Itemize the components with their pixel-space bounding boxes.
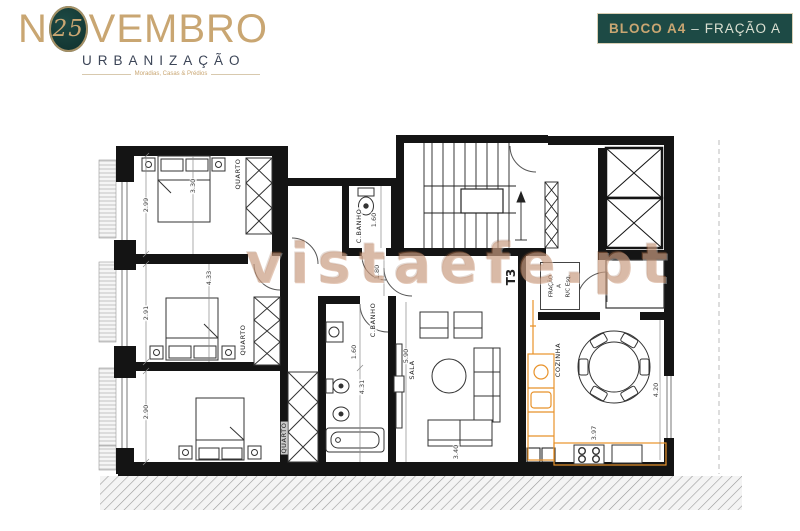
floorplan-page: N 25 VEMBRO URBANIZAÇÃO Moradias, Casas … — [0, 0, 800, 531]
kitchen-window — [667, 376, 671, 438]
dim-living-width: 3.40 — [453, 444, 460, 460]
dining-table — [578, 331, 650, 403]
watermark: vistaefe.pt — [246, 232, 676, 297]
sofa-sectional — [474, 348, 500, 422]
dim-bath-main-length: 4.31 — [359, 379, 366, 395]
room-label-bedroom3: QUARTO — [281, 421, 288, 454]
dim-bath-small-width: 1.60 — [371, 212, 378, 228]
bed-bedroom2 — [150, 298, 235, 360]
dim-kitchen-width: 3.97 — [591, 425, 598, 441]
armchair — [454, 312, 482, 338]
toilet-main-bath — [326, 379, 349, 393]
room-label-living: SALA — [409, 359, 416, 380]
bed-bedroom3 — [179, 398, 261, 460]
room-label-bath-main: C.BANHO — [370, 302, 377, 339]
bathtub-icon — [326, 428, 384, 452]
dim-bedroom1-height: 2.99 — [143, 197, 150, 213]
dim-bath-main-width: 1.60 — [351, 344, 358, 360]
dim-bedroom3-height: 2.90 — [143, 404, 150, 420]
stove-icon — [574, 445, 604, 464]
room-label-bedroom1: QUARTO — [235, 157, 242, 190]
wardrobe-bedroom3 — [288, 372, 318, 462]
coffee-table — [432, 359, 466, 393]
ground-hatch — [100, 476, 742, 510]
dim-bedroom2-width: 4.33 — [206, 270, 213, 286]
bidet-main-bath — [333, 407, 349, 421]
dim-bedroom2-height: 2.91 — [143, 305, 150, 321]
sink-main-bath — [326, 322, 343, 342]
dim-kitchen-length: 4.20 — [653, 382, 660, 398]
wardrobe-bedroom1 — [246, 158, 272, 234]
room-label-kitchen: COZINHA — [555, 342, 562, 378]
wardrobe-bedroom2 — [254, 297, 280, 365]
dim-bedroom1-width: 3.30 — [190, 178, 197, 194]
exterior-blinds — [99, 160, 116, 470]
kitchen-sink — [612, 445, 642, 463]
room-label-bedroom2: QUARTO — [240, 323, 247, 356]
bed-bedroom1 — [142, 156, 225, 222]
left-windows — [122, 156, 127, 462]
armchair — [420, 312, 448, 338]
